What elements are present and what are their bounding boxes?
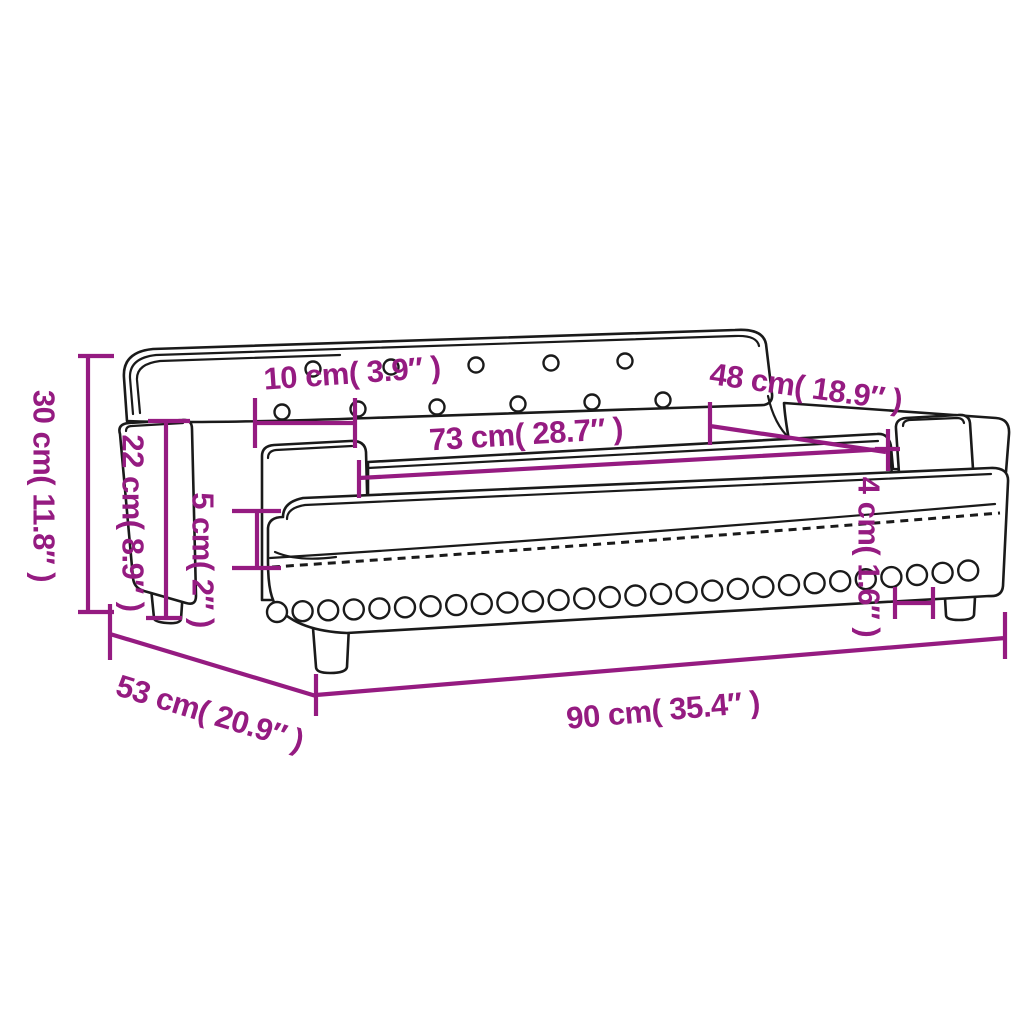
label-rail-thickness: 4 cm( 1.6″ ) [852, 477, 887, 637]
tufting-button [351, 402, 366, 417]
base-stud [600, 587, 620, 607]
sofa-line-drawing: 30 cm( 11.8″ ) 22 cm( 8.9″ ) 5 cm( 2″ ) … [0, 0, 1024, 1024]
base-stud [293, 601, 313, 621]
tufting-button [275, 405, 290, 420]
label-cushion-thickness: 5 cm( 2″ ) [186, 492, 221, 628]
tufting-button [469, 358, 484, 373]
base-stud [779, 575, 799, 595]
base-stud [446, 595, 466, 615]
base-stud [344, 599, 364, 619]
label-overall-width: 90 cm( 35.4″ ) [565, 684, 761, 736]
base-stud [651, 584, 671, 604]
base-stud [318, 600, 338, 620]
label-overall-depth: 53 cm( 20.9″ ) [112, 668, 308, 758]
tufting-button [585, 395, 600, 410]
tufting-button [511, 397, 526, 412]
base-stud [421, 596, 441, 616]
base-stud [728, 579, 748, 599]
base-stud [395, 597, 415, 617]
base-stud [958, 561, 978, 581]
right-armrest [896, 415, 973, 473]
tufting-button [544, 356, 559, 371]
label-overall-height: 30 cm( 11.8″ ) [27, 390, 62, 582]
dimension-diagram: 30 cm( 11.8″ ) 22 cm( 8.9″ ) 5 cm( 2″ ) … [0, 0, 1024, 1024]
base-stud [369, 598, 389, 618]
base-stud [907, 565, 927, 585]
base-stud [753, 577, 773, 597]
base-stud [625, 586, 645, 606]
label-armrest-height: 22 cm( 8.9″ ) [116, 434, 151, 611]
base-stud [267, 602, 287, 622]
base-stud [523, 591, 543, 611]
base-stud [677, 582, 697, 602]
base-stud [805, 573, 825, 593]
base-stud [830, 571, 850, 591]
tufting-button [656, 393, 671, 408]
dim-overall-height [78, 356, 114, 612]
base-stud [472, 594, 492, 614]
base-stud [574, 589, 594, 609]
base-stud [933, 563, 953, 583]
base-stud [702, 581, 722, 601]
base-stud [497, 593, 517, 613]
tufting-button [618, 354, 633, 369]
tufting-button [430, 400, 445, 415]
base-stud [549, 590, 569, 610]
